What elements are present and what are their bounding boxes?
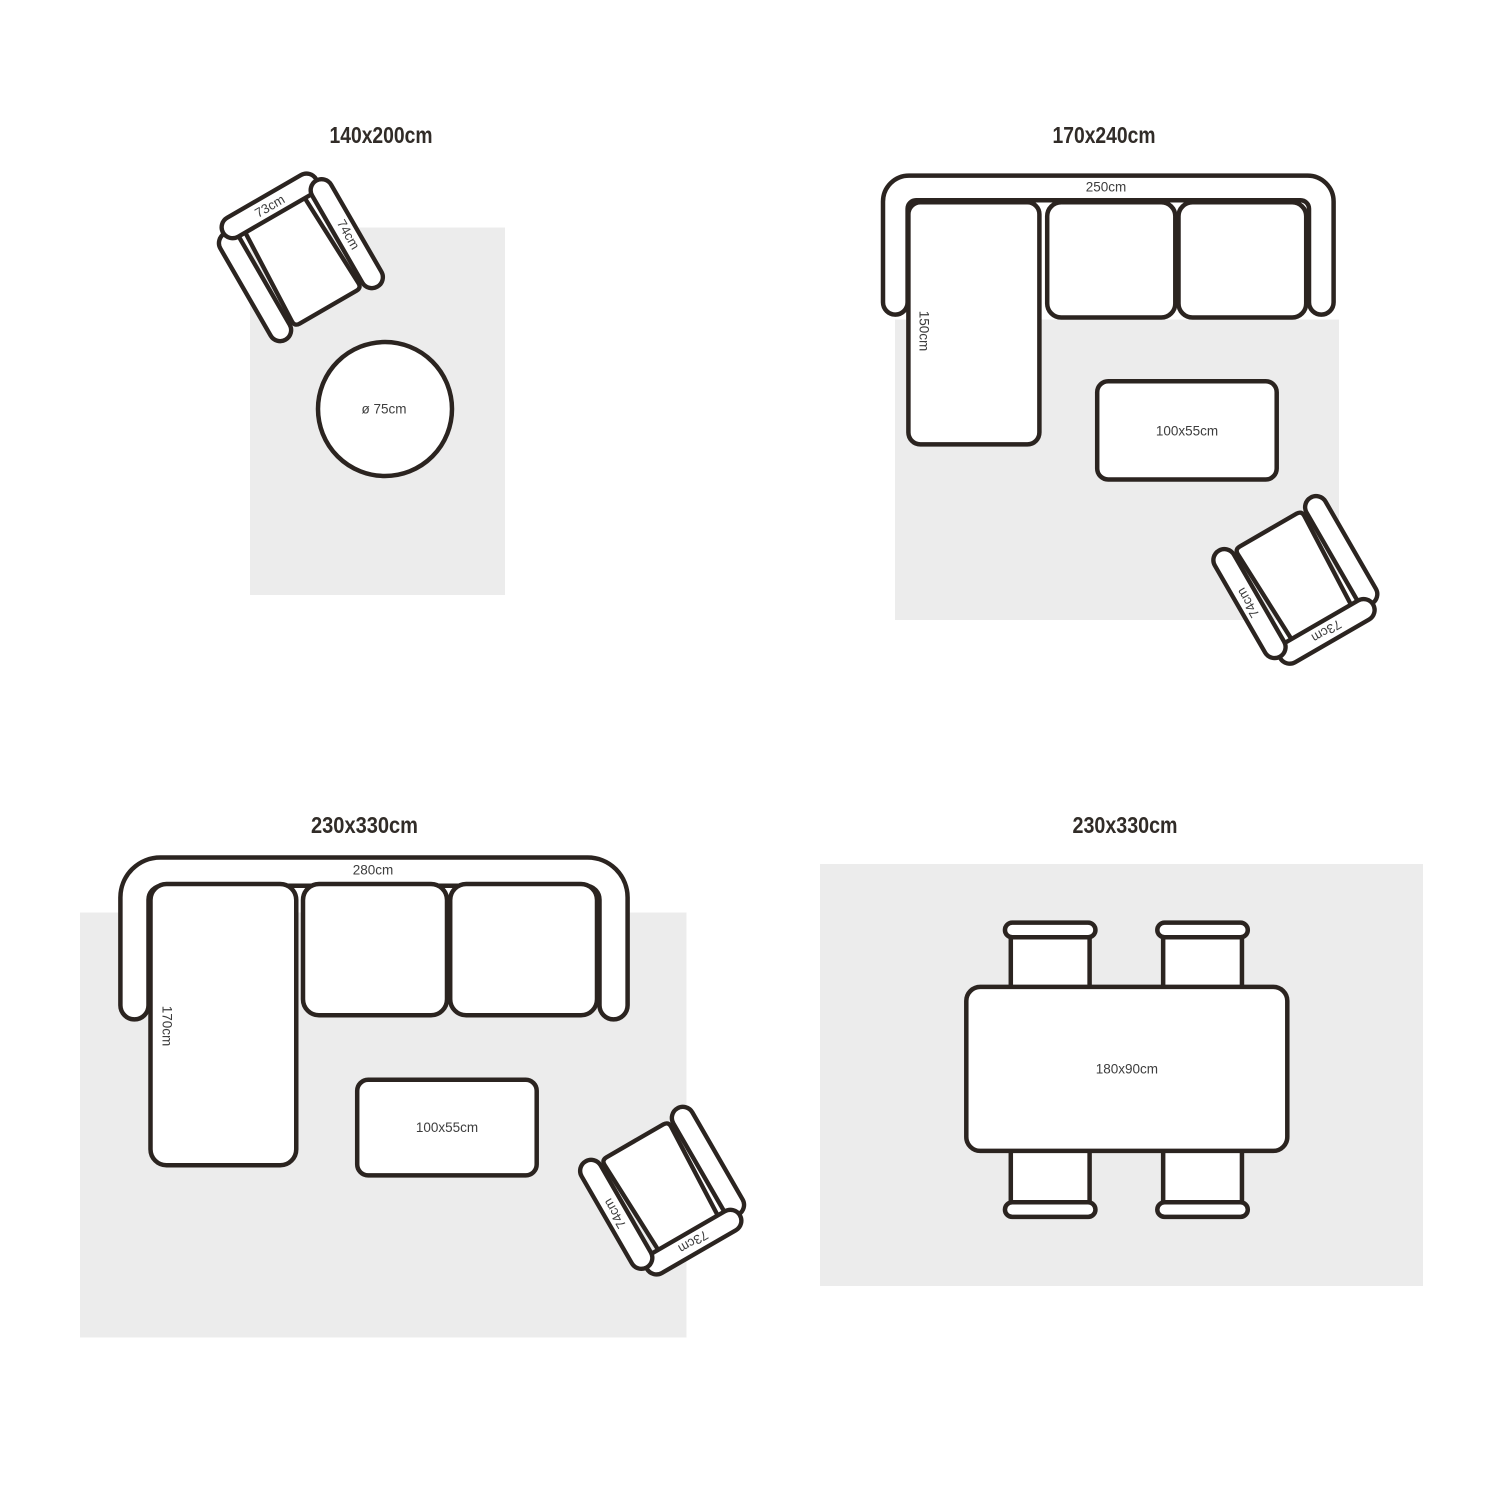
svg-text:140x200cm: 140x200cm xyxy=(330,122,433,148)
svg-text:100x55cm: 100x55cm xyxy=(1156,423,1218,438)
svg-text:230x330cm: 230x330cm xyxy=(311,812,418,838)
svg-text:180x90cm: 180x90cm xyxy=(1096,1061,1158,1076)
svg-text:170x240cm: 170x240cm xyxy=(1053,122,1156,148)
svg-text:150cm: 150cm xyxy=(916,311,931,352)
svg-text:230x330cm: 230x330cm xyxy=(1073,812,1178,838)
svg-text:250cm: 250cm xyxy=(1086,180,1127,195)
svg-text:100x55cm: 100x55cm xyxy=(416,1120,478,1135)
svg-text:280cm: 280cm xyxy=(353,863,394,878)
svg-text:170cm: 170cm xyxy=(159,1006,174,1047)
svg-text:ø 75cm: ø 75cm xyxy=(361,402,406,417)
